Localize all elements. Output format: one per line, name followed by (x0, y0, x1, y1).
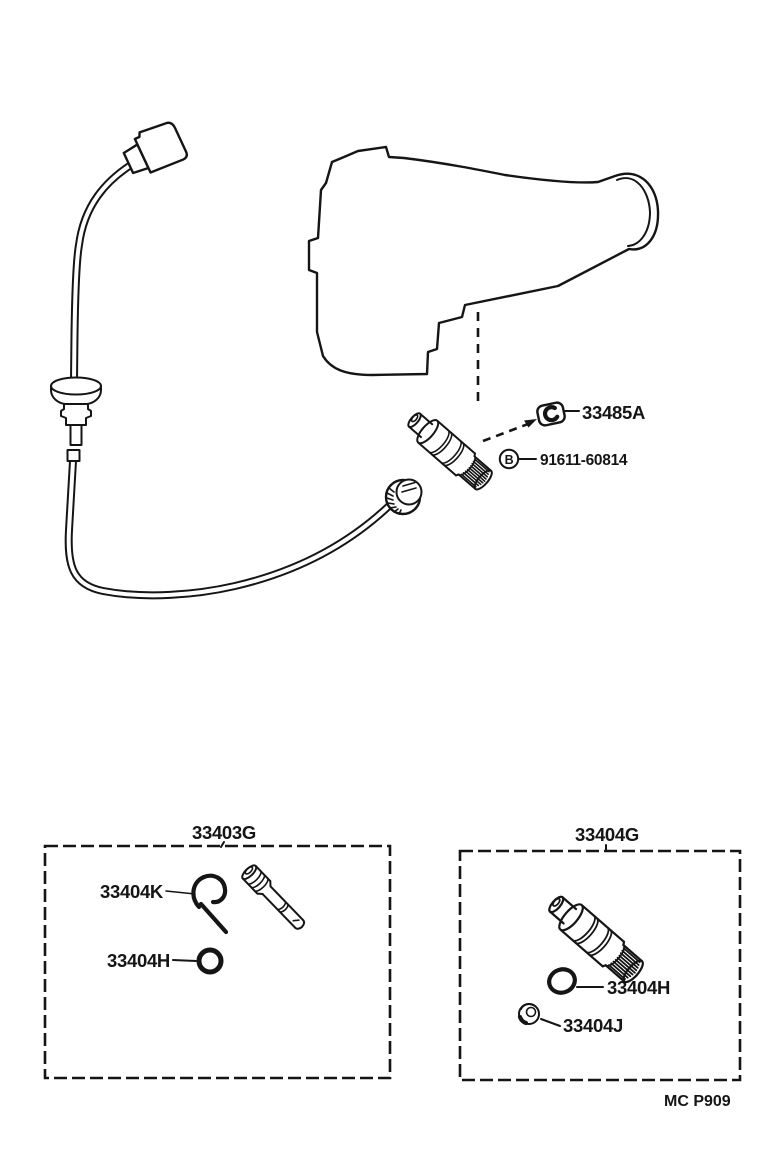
kit-box-33404g: 33404G 33404H 33404J (460, 824, 740, 1080)
leader-33404k (166, 891, 195, 894)
cable-grommet (51, 378, 101, 446)
housing-tail-rim-line (617, 178, 650, 246)
leader-33404h-left (173, 960, 196, 961)
part-label-33404h-right: 33404H (607, 977, 670, 998)
kit-box-33403g: 33403G 33404K 33404H (45, 822, 390, 1078)
kit-box-33404g-border (460, 851, 740, 1080)
part-label-33404k: 33404K (100, 881, 164, 902)
o-ring-left (199, 950, 221, 972)
part-label-33404h-left: 33404H (107, 950, 170, 971)
kit-title-33403g: 33403G (192, 822, 256, 843)
diagram-code: MC P909 (664, 1093, 731, 1110)
part-label-bolt: 91611-60814 (540, 452, 628, 469)
clip-dashed-arrow (483, 419, 537, 441)
speedometer-cable-lower (68, 450, 391, 595)
part-label-33404j: 33404J (563, 1015, 623, 1036)
kit-box-33403g-border (45, 846, 390, 1078)
cable-plug (119, 118, 189, 181)
sleeve-cap (519, 1004, 539, 1024)
o-ring-right (546, 966, 578, 997)
gear-shaft-clip (193, 876, 226, 932)
bolt-marker-letter: B (505, 453, 514, 467)
kit-title-33404g: 33404G (575, 824, 639, 845)
transmission-housing-outline (309, 147, 658, 375)
driven-gear-sleeve-kit (543, 890, 648, 987)
sleeve-lock-clip (536, 402, 566, 427)
cable-knurled-nut (386, 480, 422, 515)
part-label-33485a: 33485A (582, 402, 645, 423)
driven-gear-shaft (240, 863, 309, 934)
leader-33404j (541, 1019, 560, 1026)
parts-diagram-canvas: 33485A B 91611-60814 33403G 33404K 33404… (0, 0, 776, 1152)
speedometer-cable-upper (74, 163, 134, 380)
parts-diagram-page: 33485A B 91611-60814 33403G 33404K 33404… (0, 0, 776, 1152)
bolt-marker: B (500, 450, 518, 468)
